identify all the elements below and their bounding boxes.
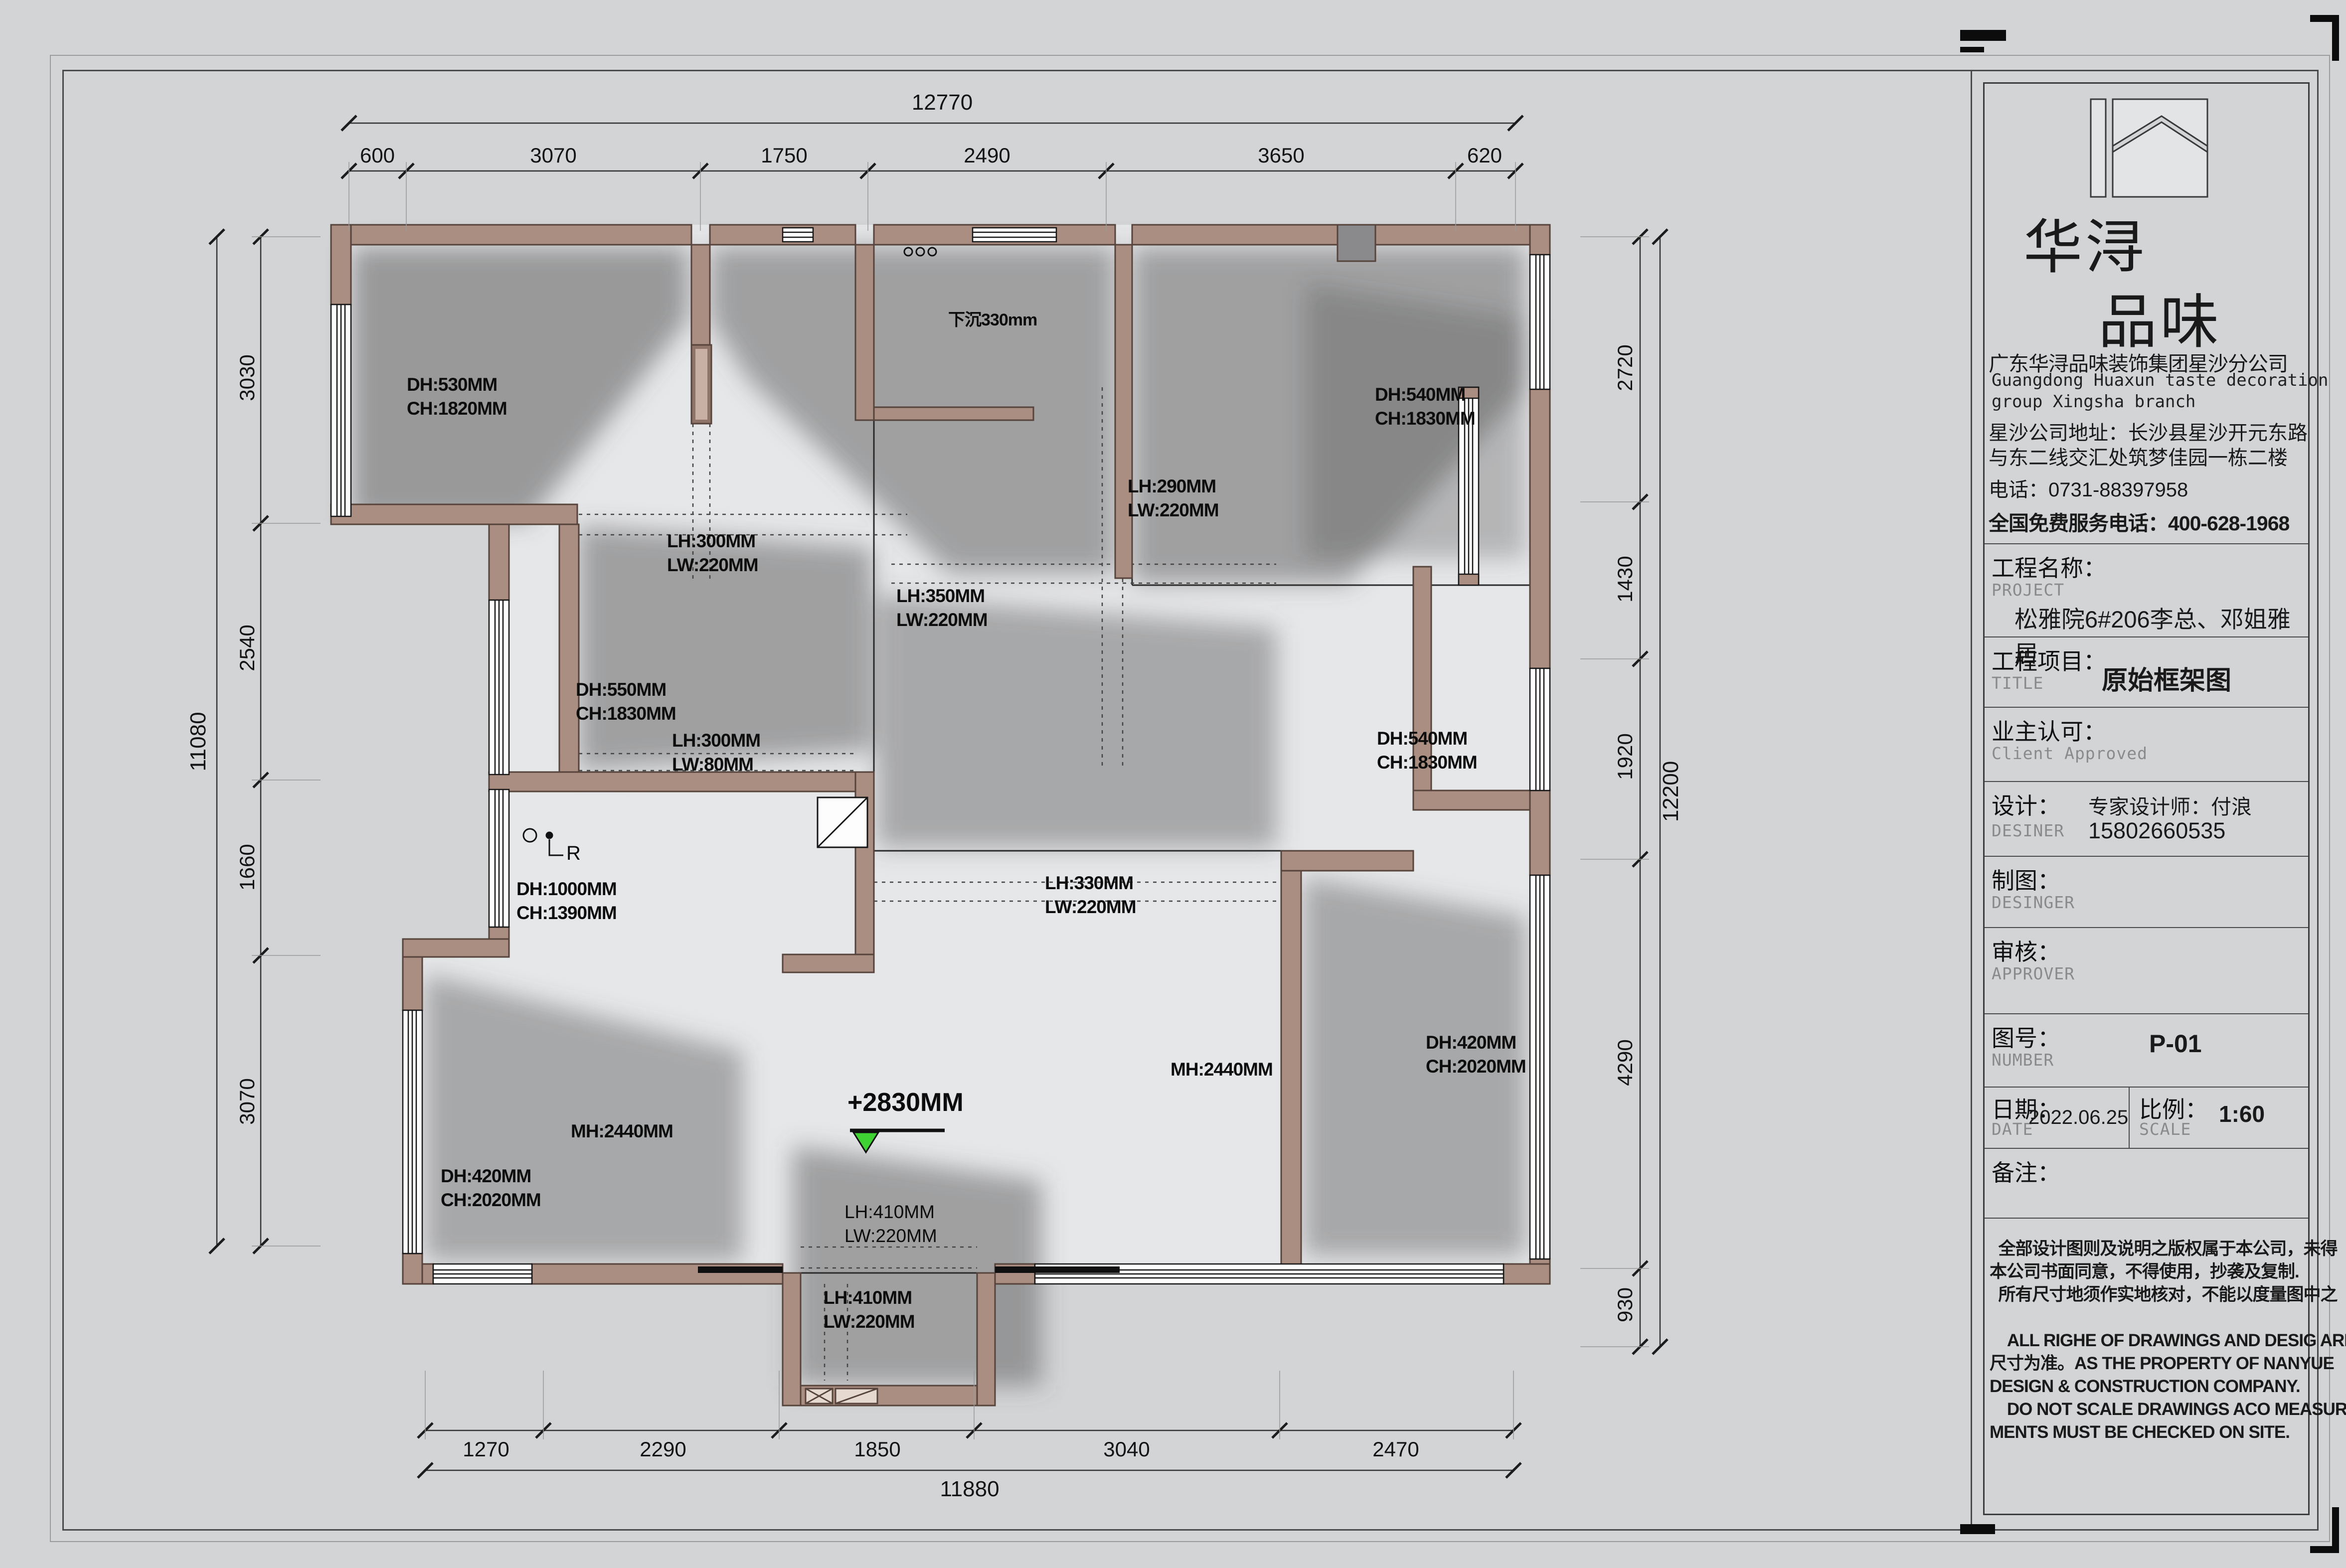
plan-annotation: DH:550MM CH:1830MM (576, 678, 676, 726)
dimension-label: 2490 (964, 144, 1010, 167)
plan-annotation: MH:2440MM (571, 1119, 673, 1143)
title-label-en: TITLE (1992, 673, 2043, 693)
row-title: 工程项目： TITLE 原始框架图 (1985, 636, 2308, 707)
designer-label-en: DESINER (1992, 821, 2064, 840)
number-label-en: NUMBER (1992, 1050, 2054, 1070)
entry-door-symbols (806, 1389, 877, 1404)
dimension-label: 3030 (235, 354, 259, 401)
titleblock-header: 华浔 品味 广东华浔品味装饰集团星沙分公司 Guangdong Huaxun t… (1985, 84, 2308, 543)
dimension-label: 4290 (1613, 1039, 1637, 1086)
dimension-label: 12200 (1659, 761, 1683, 822)
plan-annotation: LH:330MM LW:220MM (1045, 871, 1136, 919)
brand-name-line1: 华浔 (2023, 199, 2147, 285)
row-client-approved: 业主认可： Client Approved (1985, 707, 2308, 781)
dimension-label: 1850 (854, 1437, 900, 1461)
outside-mask-1 (327, 524, 489, 943)
plan-annotation: 下沉330mm (948, 308, 1037, 332)
dimension-label: 3650 (1258, 144, 1304, 167)
project-label-cn: 工程名称： (1992, 550, 2106, 583)
approver-label-cn: 审核： (1992, 934, 2060, 967)
number-label-cn: 图号： (1992, 1020, 2060, 1053)
row-disclaimer: 全部设计图则及说明之版权属于本公司，未得 本公司书面同意，不得使用，抄袭及复制.… (1985, 1218, 2308, 1515)
plan-annotation: LH:410MM LW:220MM (844, 1200, 937, 1248)
dimension-label: 3070 (235, 1078, 259, 1124)
drawing-number-value: P-01 (2149, 1029, 2202, 1058)
dimension-label: 11880 (940, 1477, 999, 1502)
dimension-label: 1430 (1613, 556, 1637, 602)
plan-annotation: LH:350MM LW:220MM (896, 584, 988, 632)
title-block: 华浔 品味 广东华浔品味装饰集团星沙分公司 Guangdong Huaxun t… (1983, 82, 2310, 1515)
plan-annotation: +2830MM (847, 1091, 964, 1114)
plan-annotation: DH:540MM CH:1830MM (1377, 727, 1477, 775)
company-address-line2: 与东二线交汇处筑梦佳园一栋二楼 (1989, 442, 2288, 470)
row-approver: 审核： APPROVER (1985, 927, 2308, 1013)
dimension-label: 1920 (1613, 733, 1637, 780)
client-label-cn: 业主认可： (1992, 714, 2106, 747)
plan-annotation: DH:540MM CH:1830MM (1375, 383, 1475, 431)
plan-annotation: LH:300MM LW:220MM (667, 529, 758, 577)
designer-label-cn: 设计： (1992, 788, 2060, 821)
row-draftsman: 制图： DESINGER (1985, 856, 2308, 927)
dimension-label: 930 (1613, 1287, 1637, 1322)
client-label-en: Client Approved (1992, 744, 2148, 763)
dimension-label: 11080 (186, 712, 211, 771)
dimension-label: 2290 (640, 1437, 686, 1461)
dimension-label: 2720 (1613, 344, 1637, 391)
plan-annotation: LH:290MM LW:220MM (1128, 474, 1219, 522)
company-logo (2087, 96, 2211, 201)
title-label-cn: 工程项目： (1992, 643, 2106, 676)
plan-annotation: MH:2440MM (1171, 1058, 1273, 1082)
scale-value: 1:60 (2219, 1100, 2265, 1127)
dimension-label: 1270 (463, 1437, 509, 1461)
scale-label-en: SCALE (2139, 1119, 2191, 1139)
row-drawing-number: 图号： NUMBER P-01 (1985, 1013, 2308, 1087)
dimension-label: 1660 (235, 844, 259, 890)
outside-mask-2 (327, 939, 403, 1294)
plan-annotation: DH:420MM CH:2020MM (1426, 1031, 1526, 1079)
designer-phone: 15802660535 (2088, 818, 2225, 844)
dimension-label: 2540 (235, 625, 259, 671)
company-phone: 电话：0731-88397958 (1989, 473, 2188, 502)
company-name-en2: group Xingsha branch (1992, 392, 2195, 412)
dimension-label: 600 (360, 144, 395, 167)
plan-annotation: DH:530MM CH:1820MM (407, 373, 507, 421)
plan-annotation: LH:410MM LW:220MM (824, 1286, 915, 1334)
drawing-sheet: 1277060030701750249036506201270229018503… (0, 0, 2346, 1568)
row-date-scale: 日期： DATE 2022.06.25 比例： SCALE 1:60 (1985, 1087, 2308, 1148)
row-remark: 备注： (1985, 1148, 2308, 1218)
row-designer: 设计： DESINER 专家设计师：付浪 15802660535 (1985, 781, 2308, 856)
plan-annotation: DH:1000MM CH:1390MM (516, 877, 617, 925)
dimension-label: 3070 (530, 144, 576, 167)
dimension-label: 620 (1467, 144, 1502, 167)
date-label-en: DATE (1992, 1119, 2033, 1139)
date-scale-divider (2129, 1088, 2130, 1148)
drawing-title-value: 原始框架图 (2102, 659, 2231, 697)
disclaimer-text: 全部设计图则及说明之版权属于本公司，未得 本公司书面同意，不得使用，抄袭及复制.… (1985, 1219, 2308, 1444)
remark-label-cn: 备注： (1992, 1155, 2060, 1188)
dimension-label: 3040 (1103, 1437, 1150, 1461)
project-label-en: PROJECT (1992, 580, 2064, 600)
plan-annotation: LH:300MM LW:80MM (672, 729, 760, 777)
draftsman-label-cn: 制图： (1992, 863, 2060, 896)
dimension-label: 1750 (761, 144, 807, 167)
company-name-en1: Guangdong Huaxun taste decoration (1992, 370, 2329, 390)
plan-annotation: DH:420MM CH:2020MM (441, 1164, 541, 1212)
closet-symbol (818, 797, 867, 847)
row-project: 工程名称： PROJECT 松雅院6#206李总、邓姐雅居 (1985, 543, 2308, 636)
date-value: 2022.06.25 (2028, 1106, 2128, 1129)
approver-label-en: APPROVER (1992, 964, 2075, 983)
dimension-label: 2470 (1372, 1437, 1419, 1461)
designer-name: 专家设计师：付浪 (2088, 790, 2252, 820)
service-hotline: 全国免费服务电话：400-628-1968 (1989, 506, 2289, 536)
dimension-label: 12770 (912, 90, 973, 115)
draftsman-label-en: DESINGER (1992, 893, 2075, 912)
plan-annotation: R (566, 841, 580, 865)
